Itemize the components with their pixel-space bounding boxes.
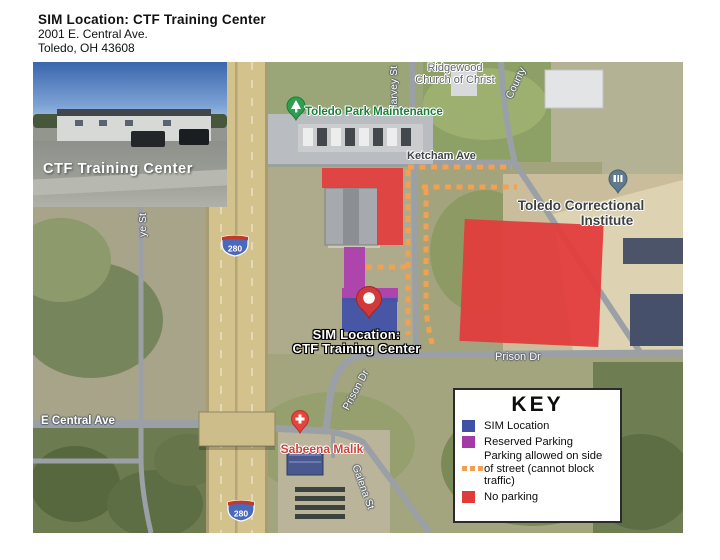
interstate-280-shield-north: 280	[222, 236, 248, 257]
warehouse-building	[545, 70, 603, 108]
svg-text:280: 280	[234, 509, 248, 519]
header: SIM Location: CTF Training Center 2001 E…	[38, 12, 266, 55]
interstate-280-shield-south: 280	[228, 501, 254, 522]
key-title: KEY	[462, 393, 613, 417]
label-ketcham-ave: Ketcham Ave	[407, 150, 476, 162]
sim-location-swatch	[462, 420, 475, 432]
photo-caption: CTF Training Center	[43, 161, 193, 177]
svg-text:280: 280	[228, 244, 242, 254]
no-parking-overlay-east	[459, 219, 603, 347]
key-item-no-parking: No parking	[462, 491, 613, 504]
address-line-1: 2001 E. Central Ave.	[38, 27, 266, 41]
label-sabeena-malik: Sabeena Malik	[272, 442, 372, 456]
key-item-street-parking: Parking allowed on side of street (canno…	[462, 450, 613, 488]
highway-overpass	[199, 412, 275, 446]
label-e-central-ave: E Central Ave	[41, 415, 115, 427]
address-line-2: Toledo, OH 43608	[38, 41, 266, 55]
label-prison-dr: Prison Dr	[495, 351, 541, 363]
key-item-sim-location: SIM Location	[462, 420, 613, 433]
correctional-building	[630, 294, 683, 346]
map-key-legend: KEY SIM Location Reserved Parking Parkin…	[453, 388, 622, 523]
page-title: SIM Location: CTF Training Center	[38, 12, 266, 27]
reserved-parking-swatch	[462, 436, 475, 448]
map-image: 280 280 Ridgewood Church of Christ Harve…	[33, 62, 683, 533]
no-parking-swatch	[462, 491, 475, 503]
label-toledo-correctional-line2: Institute	[537, 213, 677, 228]
label-ye-st: ye St	[137, 200, 149, 250]
key-item-reserved-parking: Reserved Parking	[462, 436, 613, 449]
label-ridgewood-church: Ridgewood Church of Christ	[405, 62, 505, 86]
label-toledo-correctional-line1: Toledo Correctional	[511, 198, 651, 213]
label-toledo-park-maintenance: Toledo Park Maintenance	[305, 106, 443, 118]
sim-location-callout: SIM Location: CTF Training Center	[269, 328, 444, 356]
flyer-page: { "header": { "title": "SIM Location: CT…	[0, 0, 720, 560]
street-parking-dash-swatch	[462, 466, 484, 471]
inset-photo: CTF Training Center	[33, 62, 227, 207]
